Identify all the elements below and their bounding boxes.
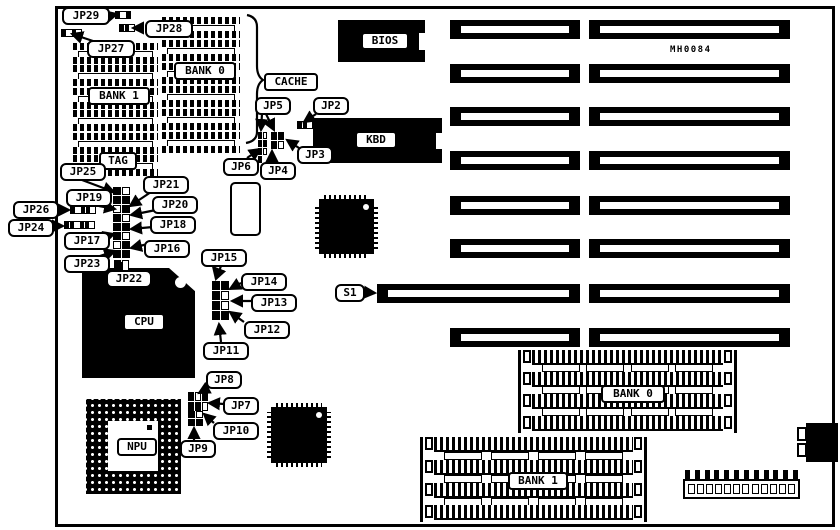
callout-jp10: JP10 [213,422,259,440]
callout-jp16: JP16 [144,240,190,258]
simm-bank1-label: BANK 1 [508,472,568,490]
callout-jp12: JP12 [244,321,290,339]
callout-s1: S1 [335,284,365,302]
callout-jp2: JP2 [313,97,349,115]
npu-label: NPU [117,438,157,456]
callout-jp6: JP6 [223,158,259,176]
callout-jp23: JP23 [64,255,110,273]
callout-jp21: JP21 [143,176,189,194]
callout-jp25: JP25 [60,163,106,181]
bios-label: BIOS [361,32,409,50]
callout-jp3: JP3 [297,146,333,164]
callout-jp4: JP4 [260,162,296,180]
callout-jp14: JP14 [241,273,287,291]
callout-jp5: JP5 [255,97,291,115]
callout-jp7: JP7 [223,397,259,415]
cache-bank0-label: BANK 0 [174,62,236,80]
callout-jp9: JP9 [180,440,216,458]
callout-jp24: JP24 [8,219,54,237]
callout-jp18: JP18 [150,216,196,234]
callout-jp26: JP26 [13,201,59,219]
simm-bank0-label: BANK 0 [601,385,665,403]
motherboard-diagram: MH0084 [0,0,840,530]
callout-jp20: JP20 [152,196,198,214]
callout-jp8: JP8 [206,371,242,389]
callout-jp22: JP22 [106,270,152,288]
callout-jp13: JP13 [251,294,297,312]
cache-label: CACHE [264,73,318,91]
callout-jp27: JP27 [87,40,135,58]
cache-bank1-label: BANK 1 [88,87,150,105]
callout-jp29: JP29 [62,7,110,25]
cpu-label: CPU [123,313,165,331]
callout-jp28: JP28 [145,20,193,38]
callout-jp17: JP17 [64,232,110,250]
kbd-label: KBD [355,131,397,149]
callout-jp11: JP11 [203,342,249,360]
callout-jp19: JP19 [66,189,112,207]
callout-jp15: JP15 [201,249,247,267]
